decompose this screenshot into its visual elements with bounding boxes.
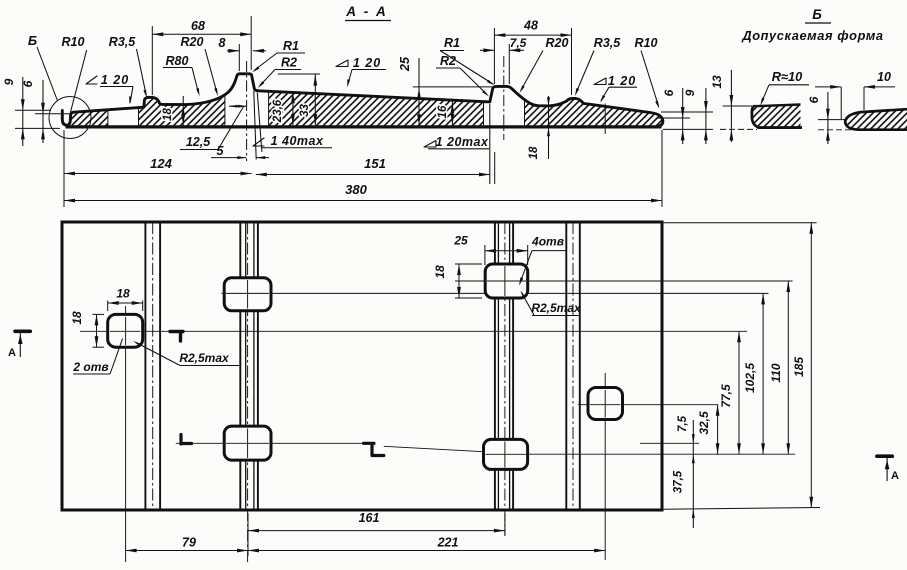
svg-text:33: 33 [299, 104, 311, 117]
svg-text:1 20max: 1 20max [436, 135, 489, 149]
svg-text:R1: R1 [283, 39, 299, 53]
svg-text:R20: R20 [546, 36, 569, 50]
svg-text:77,5: 77,5 [719, 384, 733, 408]
svg-text:1 20: 1 20 [608, 74, 636, 88]
svg-text:1 40max: 1 40max [271, 134, 324, 148]
svg-text:151: 151 [364, 156, 386, 171]
svg-text:25: 25 [453, 234, 468, 248]
svg-text:R3,5: R3,5 [594, 36, 621, 50]
svg-text:221: 221 [437, 536, 459, 550]
svg-text:9: 9 [683, 89, 697, 96]
svg-text:185: 185 [792, 357, 806, 377]
svg-text:124: 124 [150, 156, 172, 171]
svg-text:7,5: 7,5 [510, 36, 527, 50]
svg-text:R2: R2 [281, 56, 297, 70]
svg-text:R2,5max: R2,5max [531, 301, 582, 315]
svg-text:6: 6 [807, 96, 821, 103]
svg-text:6: 6 [662, 89, 676, 96]
svg-text:8: 8 [219, 36, 226, 50]
svg-text:А: А [891, 470, 899, 482]
svg-text:Допускаемая форма: Допускаемая форма [741, 28, 883, 43]
svg-text:18: 18 [162, 108, 174, 121]
svg-text:5: 5 [217, 144, 225, 158]
svg-text:1 20: 1 20 [101, 73, 129, 87]
svg-text:4отв: 4отв [531, 235, 564, 249]
svg-text:А: А [8, 347, 16, 359]
svg-text:Б: Б [812, 7, 822, 22]
svg-text:102,5: 102,5 [743, 363, 757, 393]
svg-text:380: 380 [345, 182, 367, 197]
svg-text:10: 10 [877, 70, 891, 84]
svg-text:9: 9 [2, 78, 16, 85]
svg-text:16: 16 [437, 105, 449, 118]
svg-text:110: 110 [769, 363, 783, 382]
svg-text:Б: Б [28, 33, 37, 48]
svg-text:161: 161 [359, 511, 380, 525]
svg-text:R10: R10 [62, 35, 85, 49]
svg-text:R1: R1 [444, 36, 460, 50]
svg-text:23,6: 23,6 [272, 99, 284, 123]
svg-text:R10: R10 [635, 36, 658, 50]
svg-text:18: 18 [70, 311, 84, 325]
svg-text:18: 18 [116, 287, 130, 301]
svg-text:R20: R20 [181, 35, 204, 49]
svg-text:18: 18 [528, 146, 540, 159]
svg-text:18: 18 [433, 265, 447, 279]
svg-text:37,5: 37,5 [673, 470, 685, 493]
svg-text:R80: R80 [166, 54, 189, 68]
svg-text:12,5: 12,5 [186, 135, 211, 149]
svg-text:6: 6 [21, 80, 35, 87]
svg-text:А - А: А - А [345, 4, 388, 19]
svg-text:79: 79 [182, 536, 196, 550]
svg-text:25: 25 [398, 56, 412, 72]
svg-text:1 20: 1 20 [353, 56, 381, 70]
svg-text:13: 13 [710, 75, 724, 89]
svg-text:R≈10: R≈10 [772, 69, 803, 84]
svg-text:R2,5max: R2,5max [179, 351, 230, 365]
svg-text:2 отв: 2 отв [72, 360, 108, 374]
svg-text:48: 48 [523, 19, 538, 33]
svg-text:7,5: 7,5 [677, 415, 689, 432]
svg-text:R3,5: R3,5 [109, 35, 136, 49]
svg-text:R2: R2 [440, 54, 456, 68]
svg-text:32,5: 32,5 [697, 411, 711, 435]
svg-text:68: 68 [191, 19, 205, 33]
